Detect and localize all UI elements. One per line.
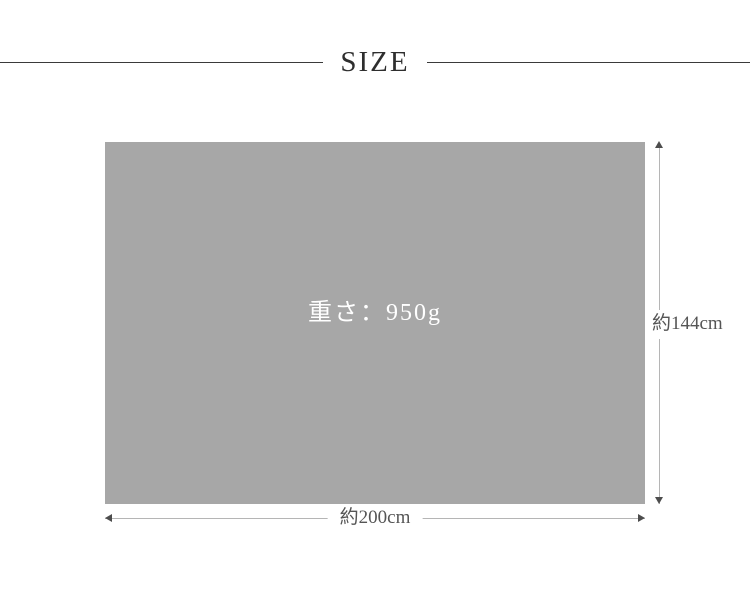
size-diagram-page: SIZE 重さ：950g 約144cm 約200cm <box>0 0 750 600</box>
arrow-down-icon <box>655 497 663 504</box>
height-label: 約144cm <box>650 310 723 339</box>
product-size-diagram: 重さ：950g 約144cm 約200cm <box>0 0 750 600</box>
width-label: 約200cm <box>328 506 423 530</box>
arrow-right-icon <box>638 514 645 522</box>
arrow-left-icon <box>105 514 112 522</box>
arrow-up-icon <box>655 141 663 148</box>
product-rectangle: 重さ：950g <box>105 142 645 504</box>
weight-label: 重さ：950g <box>308 301 442 325</box>
